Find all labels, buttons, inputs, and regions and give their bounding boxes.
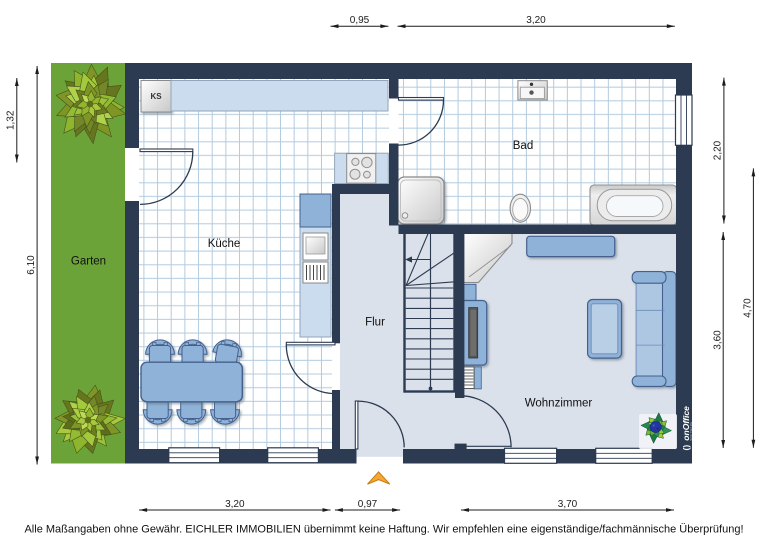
svg-text:4,70: 4,70 <box>743 298 754 318</box>
svg-text:SOFTWARE: SOFTWARE <box>689 422 693 441</box>
svg-text:3,70: 3,70 <box>558 499 578 510</box>
svg-text:Wohnzimmer: Wohnzimmer <box>525 398 593 410</box>
svg-text:3,60: 3,60 <box>713 330 724 350</box>
svg-text:Alle Maßangaben ohne Gewähr. E: Alle Maßangaben ohne Gewähr. EICHLER IMM… <box>24 524 743 536</box>
svg-text:(): () <box>681 445 691 451</box>
svg-text:6,10: 6,10 <box>26 255 37 275</box>
svg-text:3,20: 3,20 <box>225 499 245 510</box>
svg-text:Bad: Bad <box>513 140 533 152</box>
svg-text:2,20: 2,20 <box>713 140 724 160</box>
svg-text:Flur: Flur <box>365 317 385 329</box>
svg-text:0,95: 0,95 <box>350 15 370 26</box>
svg-text:0,97: 0,97 <box>358 499 378 510</box>
svg-text:KS: KS <box>150 92 162 101</box>
svg-text:Küche: Küche <box>208 238 241 250</box>
svg-text:3,20: 3,20 <box>526 15 546 26</box>
svg-text:Garten: Garten <box>71 256 106 268</box>
svg-text:1,32: 1,32 <box>6 110 17 130</box>
